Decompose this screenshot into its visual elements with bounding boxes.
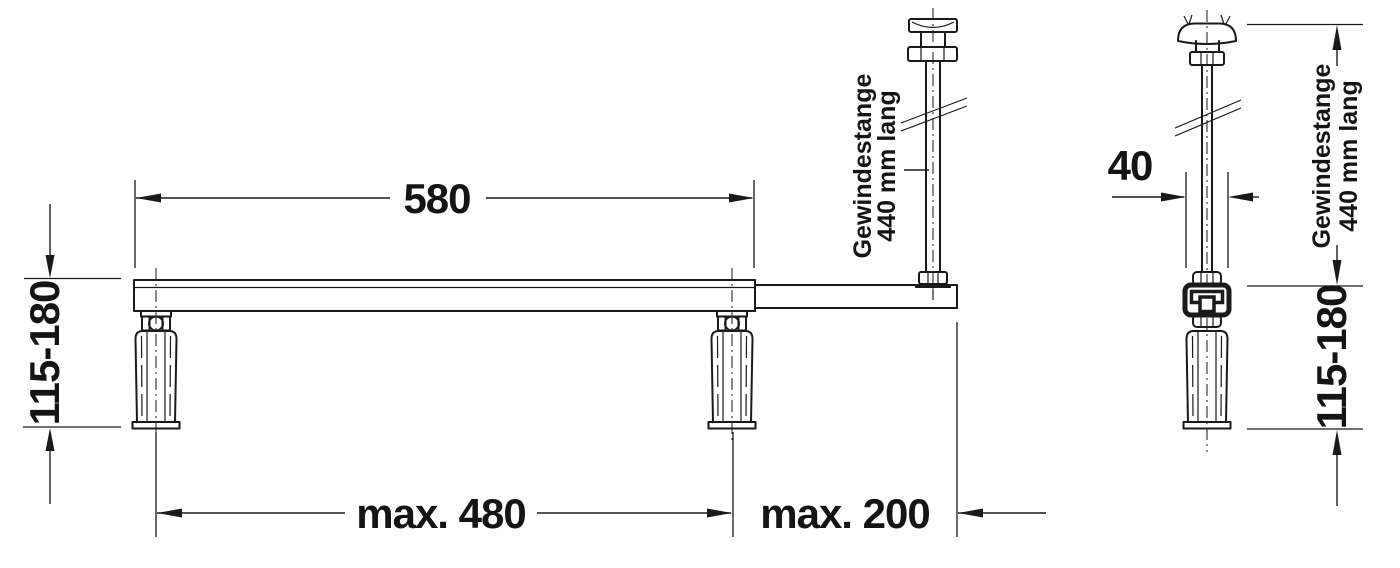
dim-max-480-label: max. 480: [356, 490, 525, 537]
arrowhead-right: [1161, 193, 1186, 202]
dim-580: 580: [135, 175, 754, 268]
beam: [134, 280, 755, 311]
dim-40: 40: [1108, 142, 1259, 268]
break-symbol: [1175, 100, 1241, 136]
right-foot: [709, 268, 756, 444]
dim-rod-length-side: Gewindestange 440 mm lang: [1247, 25, 1363, 287]
arrowhead-left: [958, 509, 983, 518]
arrowhead-up: [46, 428, 55, 451]
dim-height-side: 115-180: [1247, 285, 1363, 506]
arrowhead-down: [46, 255, 55, 278]
telescopic-tube: [755, 285, 957, 308]
dim-height-side-label: 115-180: [1308, 285, 1355, 430]
break-symbol: [901, 98, 967, 131]
arrowhead-down: [1333, 260, 1342, 285]
beam-cross-section: [1185, 285, 1229, 315]
dim-max-200-label: max. 200: [760, 490, 929, 537]
rod-note-side-line1: Gewindestange: [1308, 64, 1336, 249]
arrowhead-left: [157, 509, 182, 518]
side-view: 40 Gewindestange 440 mm lang 115-180: [1108, 10, 1363, 506]
front-view: Gewindestange 440 mm lang 580 max. 480: [21, 8, 1046, 537]
arrowhead-left: [136, 194, 161, 203]
rod-note-side-line2: 440 mm lang: [1335, 80, 1363, 231]
dim-height-front-label: 115-180: [21, 281, 68, 426]
threaded-rod-front: [901, 8, 967, 300]
dim-40-label: 40: [1108, 142, 1153, 189]
drawing-canvas: Gewindestange 440 mm lang 580 max. 480: [0, 0, 1400, 568]
dim-height-front: 115-180: [21, 204, 121, 504]
rod-note-front-line2: 440 mm lang: [873, 90, 901, 241]
dim-max-480: max. 480: [156, 432, 733, 537]
left-foot: [133, 268, 180, 444]
threaded-rod-side: [1175, 10, 1241, 452]
arrowhead-right: [707, 509, 732, 518]
arrowhead-left: [1228, 193, 1253, 202]
dim-max-200: max. 200: [760, 322, 1046, 537]
arrowhead-right: [729, 194, 754, 203]
rod-bottom-flange: [915, 284, 951, 288]
dim-580-label: 580: [403, 175, 470, 222]
arrowhead-up: [1333, 430, 1342, 455]
rod-note-front: Gewindestange 440 mm lang: [849, 74, 929, 259]
arrowhead-up: [1333, 25, 1342, 50]
technical-drawing: Gewindestange 440 mm lang 580 max. 480: [0, 0, 1400, 568]
